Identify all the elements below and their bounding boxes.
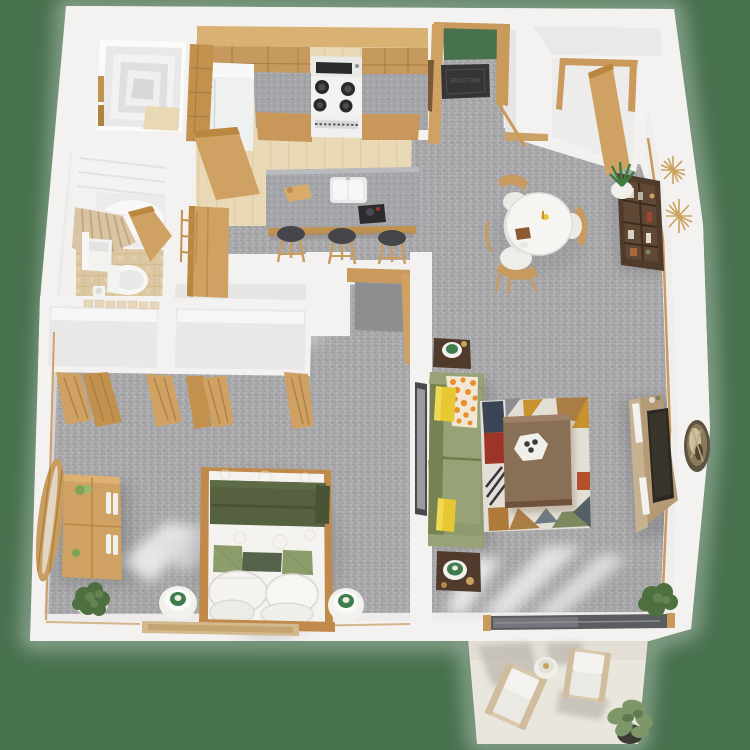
svg-text:WELCOME: WELCOME <box>449 76 480 82</box>
